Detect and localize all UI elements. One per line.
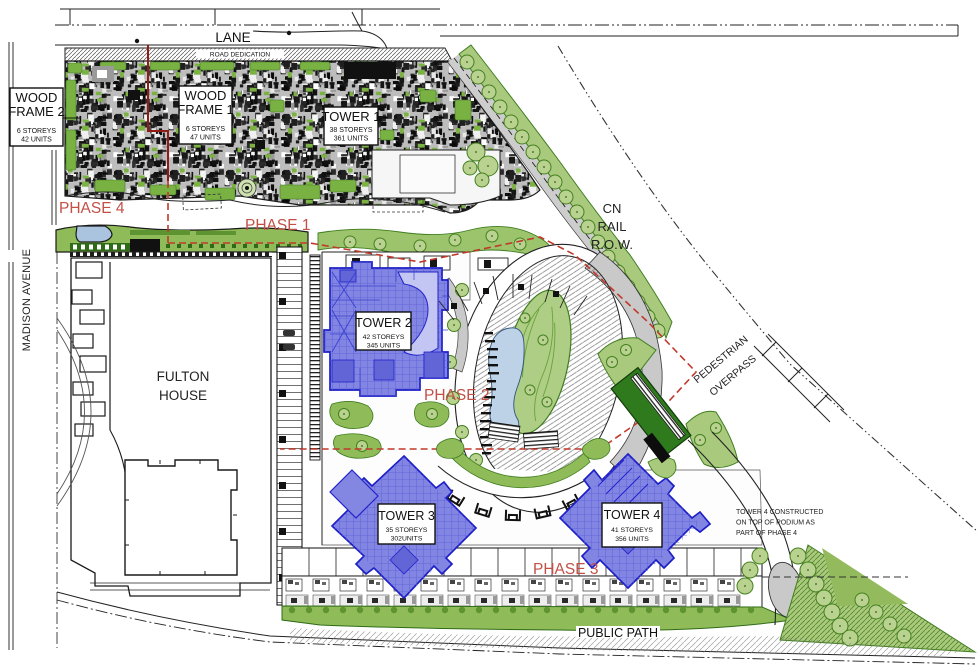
svg-text:ROAD DEDICATION: ROAD DEDICATION [210, 52, 270, 59]
svg-text:PHASE 2: PHASE 2 [424, 387, 489, 404]
svg-text:TOWER 4 CONSTRUCTED: TOWER 4 CONSTRUCTED [736, 509, 823, 516]
svg-text:MADISON AVENUE: MADISON AVENUE [21, 249, 33, 351]
svg-text:FRAME 1: FRAME 1 [177, 102, 233, 117]
svg-text:LANE: LANE [215, 30, 250, 45]
svg-text:FRAME 2: FRAME 2 [8, 104, 64, 119]
svg-text:WOOD: WOOD [185, 88, 227, 103]
svg-text:42 STOREYS: 42 STOREYS [363, 334, 405, 341]
svg-text:TOWER 2: TOWER 2 [355, 316, 412, 330]
svg-text:345 UNITS: 345 UNITS [367, 343, 401, 350]
svg-text:47 UNITS: 47 UNITS [190, 135, 221, 142]
svg-text:35 STOREYS: 35 STOREYS [386, 527, 428, 534]
svg-text:42 UNITS: 42 UNITS [21, 137, 52, 144]
svg-text:TOWER 4: TOWER 4 [604, 508, 661, 522]
svg-text:ON TOP OF PODIUM AS: ON TOP OF PODIUM AS [736, 520, 815, 527]
svg-text:R.O.W.: R.O.W. [591, 237, 633, 252]
svg-text:356 UNITS: 356 UNITS [615, 536, 649, 543]
svg-text:WOOD: WOOD [16, 90, 58, 105]
svg-text:302UNITS: 302UNITS [391, 536, 423, 543]
svg-text:FULTON: FULTON [157, 369, 210, 384]
svg-text:HOUSE: HOUSE [159, 388, 207, 403]
svg-text:41 STOREYS: 41 STOREYS [611, 527, 653, 534]
svg-text:PHASE 4: PHASE 4 [59, 200, 125, 217]
svg-text:361 UNITS: 361 UNITS [334, 136, 369, 143]
svg-text:PHASE 1: PHASE 1 [245, 217, 310, 234]
svg-text:38 STOREYS: 38 STOREYS [329, 127, 372, 134]
svg-text:TOWER 1: TOWER 1 [322, 109, 381, 124]
svg-text:6 STOREYS: 6 STOREYS [186, 126, 225, 133]
svg-text:PHASE 3: PHASE 3 [533, 561, 598, 578]
svg-text:PUBLIC PATH: PUBLIC PATH [578, 626, 658, 640]
svg-text:CN: CN [603, 201, 622, 216]
svg-text:PART OF PHASE 4: PART OF PHASE 4 [736, 530, 797, 537]
svg-text:6 STOREYS: 6 STOREYS [17, 128, 56, 135]
svg-text:TOWER 3: TOWER 3 [378, 509, 435, 523]
svg-text:RAIL: RAIL [598, 219, 627, 234]
